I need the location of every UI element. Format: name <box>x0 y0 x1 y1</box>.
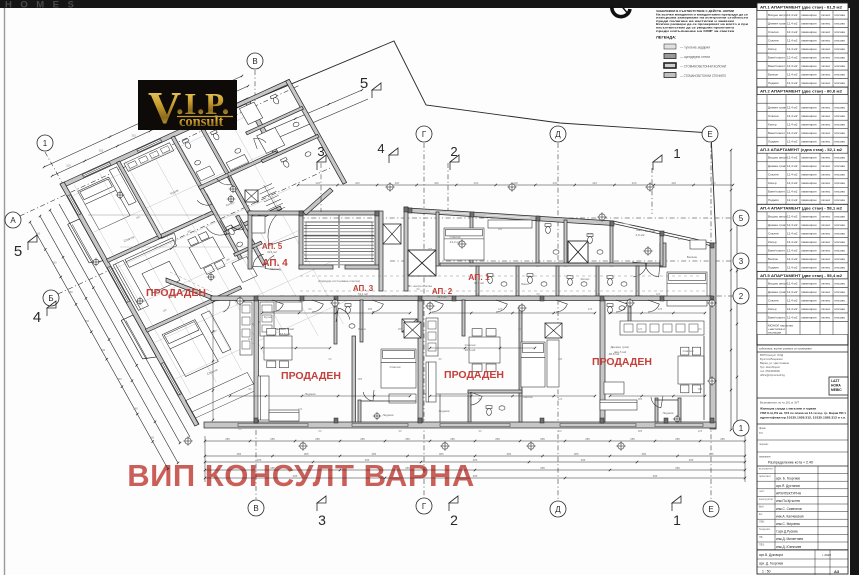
svg-text:АП.3 АПАРТАМЕНТ (една стая) -: АП.3 АПАРТАМЕНТ (една стая) - 52,1 м2 <box>760 148 842 152</box>
svg-text:Варна, ул. Цар Симеон: Варна, ул. Цар Симеон <box>760 361 790 365</box>
svg-text:ПБЗ:: ПБЗ: <box>759 543 765 546</box>
svg-text:120: 120 <box>558 397 563 401</box>
svg-text:385: 385 <box>405 437 410 441</box>
svg-text:ламиниран: ламиниран <box>801 315 817 319</box>
svg-text:20,6 м2: 20,6 м2 <box>465 348 476 352</box>
svg-text:название:: название: <box>759 456 772 459</box>
svg-text:Е: Е <box>707 130 712 139</box>
svg-text:4: 4 <box>33 309 41 326</box>
svg-text:гипсова: гипсова <box>834 131 845 135</box>
svg-text:Спалня: Спалня <box>390 365 401 369</box>
svg-text:260: 260 <box>133 406 138 410</box>
svg-text:латекс: латекс <box>821 47 831 51</box>
svg-text:240: 240 <box>588 232 593 236</box>
svg-text:385: 385 <box>709 452 714 456</box>
svg-text:ламиниран: ламиниран <box>801 106 817 110</box>
svg-text:инж.С. Симеонов: инж.С. Симеонов <box>776 507 802 511</box>
svg-text:385: 385 <box>638 429 643 433</box>
svg-text:385: 385 <box>506 452 511 456</box>
svg-text:Баня/тоалет: Баня/тоалет <box>768 56 786 60</box>
svg-text:(Коридор отстъпване клетка): (Коридор отстъпване клетка) <box>318 279 360 283</box>
svg-text:гипсова: гипсова <box>834 173 845 177</box>
svg-text:Балкон: Балкон <box>768 257 778 261</box>
svg-text:арх.В. Дуковора: арх.В. Дуковора <box>759 553 783 557</box>
svg-text:Килер: Килер <box>768 181 777 185</box>
svg-text:385: 385 <box>368 307 373 311</box>
svg-text:инж.С. Мирчева: инж.С. Мирчева <box>776 522 800 526</box>
svg-text:425: 425 <box>698 429 703 433</box>
svg-text:Дневен тракт: Дневен тракт <box>768 106 787 110</box>
svg-text:гипсова: гипсова <box>834 223 845 227</box>
svg-text:ламиниран: ламиниран <box>801 240 817 244</box>
svg-text:инж.Д. Юзекчиев: инж.Д. Юзекчиев <box>776 545 802 549</box>
svg-text:33,6 м2: 33,6 м2 <box>280 332 291 336</box>
svg-text:ламиниран: ламиниран <box>801 290 817 294</box>
svg-text:латекс: латекс <box>821 223 831 227</box>
svg-text:MEBIC: MEBIC <box>831 388 842 392</box>
svg-text:Лоджия: Лоджия <box>768 140 779 144</box>
svg-text:Спалня: Спалня <box>522 395 533 399</box>
svg-text:ламиниран: ламиниран <box>801 114 817 118</box>
svg-text:385: 385 <box>315 437 320 441</box>
svg-text:420: 420 <box>671 181 676 185</box>
svg-text:3: 3 <box>739 257 744 266</box>
svg-text:Вх. антре клетка: Вх. антре клетка <box>408 284 432 288</box>
svg-text:латекс: латекс <box>821 22 831 26</box>
svg-text:гипсова: гипсова <box>834 257 845 261</box>
svg-text:гипсова: гипсова <box>834 198 845 202</box>
svg-text:гипсова: гипсова <box>834 190 845 194</box>
svg-text:АП.1 АПАРТАМЕНТ (две стаи) -: АП.1 АПАРТАМЕНТ (две стаи) - 61,5 м2 <box>760 5 842 9</box>
svg-text:385: 385 <box>689 458 694 462</box>
svg-text:гипсова: гипсова <box>834 123 845 127</box>
svg-text:LAZT: LAZT <box>831 379 839 383</box>
svg-text:32,1 м2: 32,1 м2 <box>267 250 277 254</box>
svg-text:— СТОМАНОБЕТОННИ СТЕНИ/ПЛ: — СТОМАНОБЕТОННИ СТЕНИ/ПЛ <box>680 74 726 78</box>
svg-text:260: 260 <box>85 319 90 323</box>
svg-text:Спалня: Спалня <box>450 235 461 239</box>
svg-text:Спалня: Спалня <box>768 39 779 43</box>
svg-text:Спалня: Спалня <box>768 298 779 302</box>
svg-text:гипсова: гипсова <box>834 64 845 68</box>
svg-text:ламиниран: ламиниран <box>801 231 817 235</box>
svg-text:арх. Д. Георгиев: арх. Д. Георгиев <box>759 562 783 566</box>
svg-text:арх.Я. Духтанов: арх.Я. Духтанов <box>776 484 800 488</box>
svg-text:HOMES: HOMES <box>5 0 82 11</box>
svg-text:ламиниран: ламиниран <box>801 265 817 269</box>
svg-text:385: 385 <box>653 474 658 478</box>
svg-text:260: 260 <box>52 261 57 265</box>
svg-text:12,4 м2: 12,4 м2 <box>787 281 798 285</box>
svg-text:латекс: латекс <box>821 39 831 43</box>
svg-text:420: 420 <box>315 181 320 185</box>
svg-text:гипсова: гипсова <box>834 47 845 51</box>
svg-text:ламиниран: ламиниран <box>801 214 817 218</box>
svg-text:12,4 м2: 12,4 м2 <box>787 30 798 34</box>
svg-text:385: 385 <box>675 466 680 470</box>
svg-text:Спалня: Спалня <box>768 231 779 235</box>
svg-text:12,4 м2: 12,4 м2 <box>787 214 798 218</box>
svg-text:385: 385 <box>473 458 478 462</box>
svg-text:латекс: латекс <box>821 190 831 194</box>
svg-text:385: 385 <box>473 474 478 478</box>
svg-text:420: 420 <box>434 181 439 185</box>
svg-text:385: 385 <box>638 397 643 401</box>
svg-text:Входно антре: Входно антре <box>768 13 787 17</box>
svg-text:12,4 м2: 12,4 м2 <box>787 13 798 17</box>
svg-text:385: 385 <box>720 437 725 441</box>
svg-text:ламиниран: ламиниран <box>801 307 817 311</box>
svg-text:идентификатор 10135.1026.312,: идентификатор 10135.1026.312, 10135.1026… <box>760 416 846 420</box>
svg-text:А: А <box>10 216 16 225</box>
svg-text:латекс: латекс <box>821 315 831 319</box>
svg-text:АП.2 АПАРТАМЕНТ (две стаи) -: АП.2 АПАРТАМЕНТ (две стаи) - 60,6 м2 <box>760 90 842 94</box>
svg-text:12,4 м2: 12,4 м2 <box>787 114 798 118</box>
svg-text:Дневен тракт: Дневен тракт <box>768 164 787 168</box>
svg-text:гипсова: гипсова <box>834 164 845 168</box>
svg-text:гипсова: гипсова <box>834 73 845 77</box>
svg-text:12,4 м2: 12,4 м2 <box>787 156 798 160</box>
svg-text:1: 1 <box>739 424 744 433</box>
svg-text:латекс: латекс <box>821 257 831 261</box>
svg-text:ламиниран: ламиниран <box>801 298 817 302</box>
svg-text:385: 385 <box>585 437 590 441</box>
svg-text:4,6 м2: 4,6 м2 <box>635 233 644 237</box>
svg-text:Лоджия: Лоджия <box>383 413 394 417</box>
svg-text:13,2 м2: 13,2 м2 <box>450 240 461 244</box>
svg-text:арх. Б. Георгиев: арх. Б. Георгиев <box>776 476 800 480</box>
svg-text:385: 385 <box>581 458 586 462</box>
svg-text:385: 385 <box>360 437 365 441</box>
svg-text:12,4 м2: 12,4 м2 <box>787 131 798 135</box>
svg-text:Геодезия:: Геодезия: <box>759 528 771 531</box>
svg-text:латекс: латекс <box>821 307 831 311</box>
svg-text:120: 120 <box>596 292 601 296</box>
svg-text:ламиниран: ламиниран <box>801 56 817 60</box>
svg-text:латекс: латекс <box>821 156 831 160</box>
svg-text:Д: Д <box>555 505 561 514</box>
svg-text:12,4 м2: 12,4 м2 <box>787 240 798 244</box>
svg-text:310: 310 <box>66 164 71 168</box>
svg-text:проектант:: проектант: <box>759 475 772 478</box>
svg-text:ПРОДАДЕН: ПРОДАДЕН <box>146 287 206 299</box>
svg-text:12,4 м2: 12,4 м2 <box>787 140 798 144</box>
svg-text:латекс: латекс <box>821 164 831 168</box>
svg-text:латекс: латекс <box>821 123 831 127</box>
svg-text:385: 385 <box>270 437 275 441</box>
svg-text:12,4 м2: 12,4 м2 <box>787 56 798 60</box>
svg-text:12,4 м2: 12,4 м2 <box>787 64 798 68</box>
svg-text:420: 420 <box>553 181 558 185</box>
svg-text:Баня/тоалет: Баня/тоалет <box>768 131 786 135</box>
svg-text:Балкон: Балкон <box>645 229 656 233</box>
svg-text:ТИ: ТИ <box>759 431 763 435</box>
svg-text:— щендерни стени: — щендерни стени <box>680 55 710 59</box>
svg-text:Баня: Баня <box>521 282 528 286</box>
svg-text:Д: Д <box>555 130 561 139</box>
svg-text:Дневен тракт: Дневен тракт <box>610 345 630 349</box>
svg-text:Баня: Баня <box>358 327 365 331</box>
svg-text:5: 5 <box>739 214 744 223</box>
svg-text:ВИП Консулт ООД: ВИП Консулт ООД <box>760 353 783 357</box>
svg-text:2: 2 <box>450 512 458 528</box>
svg-text:425: 425 <box>658 307 663 311</box>
svg-text:385: 385 <box>675 437 680 441</box>
svg-text:латекс: латекс <box>821 73 831 77</box>
svg-text:12,4 м2: 12,4 м2 <box>787 123 798 127</box>
svg-text:Баня/тоалет: Баня/тоалет <box>768 190 786 194</box>
svg-text:Килер: Килер <box>768 307 777 311</box>
svg-text:гипсова: гипсова <box>834 248 845 252</box>
svg-text:ПРОДАДЕН: ПРОДАДЕН <box>281 370 341 382</box>
svg-text:385: 385 <box>225 437 230 441</box>
svg-text:част:: част: <box>759 490 765 493</box>
svg-text:420: 420 <box>395 181 400 185</box>
svg-text:ВиК:: ВиК: <box>759 505 765 508</box>
svg-text:385: 385 <box>498 227 503 231</box>
svg-text:гипсова: гипсова <box>834 240 845 244</box>
svg-text:гипсова: гипсова <box>834 140 845 144</box>
svg-text:възложител:: възложител: <box>759 467 774 470</box>
svg-text:Лоджия: Лоджия <box>768 81 779 85</box>
svg-text:425: 425 <box>678 237 683 241</box>
svg-text:ЛЕГЕНДА:: ЛЕГЕНДА: <box>656 35 676 40</box>
svg-text:ламиниран: ламиниран <box>801 81 817 85</box>
svg-text:420: 420 <box>711 181 716 185</box>
svg-text:ламиниран: ламиниран <box>801 164 817 168</box>
svg-text:385: 385 <box>365 458 370 462</box>
svg-text:385: 385 <box>630 437 635 441</box>
svg-text:1: 1 <box>673 146 680 161</box>
svg-text:420: 420 <box>355 181 360 185</box>
svg-text:12,4 м2: 12,4 м2 <box>787 290 798 294</box>
svg-text:гипсова: гипсова <box>834 30 845 34</box>
svg-text:120: 120 <box>298 407 303 411</box>
svg-text:В: В <box>252 57 257 66</box>
svg-text:12,4 м2: 12,4 м2 <box>787 47 798 51</box>
svg-text:Възложители: по чл.161 от ЗУТ: Възложители: по чл.161 от ЗУТ <box>760 401 800 405</box>
svg-text:Спалня: Спалня <box>768 30 779 34</box>
svg-text:гипсова: гипсова <box>834 298 845 302</box>
svg-text:латекс: латекс <box>821 140 831 144</box>
svg-text:12,4 м2: 12,4 м2 <box>787 164 798 168</box>
svg-text:12,4 м2: 12,4 м2 <box>787 265 798 269</box>
svg-text:латекс: латекс <box>821 198 831 202</box>
svg-text:гипсова: гипсова <box>834 290 845 294</box>
svg-text:office@vipconsult.bg: office@vipconsult.bg <box>760 373 785 377</box>
svg-text:УПИ II-4,I,ПЗ кв. 573 по плана: УПИ II-4,I,ПЗ кв. 573 по плана на 14-ти … <box>760 411 846 415</box>
svg-text:120: 120 <box>638 327 643 331</box>
svg-text:Спалня: Спалня <box>768 173 779 177</box>
svg-text:385: 385 <box>270 466 275 470</box>
svg-text:латекс: латекс <box>821 56 831 60</box>
svg-text:Балкон: Балкон <box>687 255 698 259</box>
svg-text:Баня/тоалет: Баня/тоалет <box>768 248 786 252</box>
svg-text:гипсова: гипсова <box>834 13 845 17</box>
svg-text:12,4 м2: 12,4 м2 <box>787 307 798 311</box>
svg-text:латекс: латекс <box>821 173 831 177</box>
svg-text:Дневен тракт: Дневен тракт <box>275 327 295 331</box>
svg-text:44,6 м2: 44,6 м2 <box>437 295 447 299</box>
svg-text:гипсова: гипсова <box>834 315 845 319</box>
svg-text:Лоджия: Лоджия <box>663 411 674 415</box>
svg-text:385: 385 <box>405 466 410 470</box>
svg-text:Жилищна сграда с магазини и га: Жилищна сграда с магазини и гаражи <box>759 407 816 411</box>
svg-text:гипсова: гипсова <box>834 181 845 185</box>
svg-text:бул. Княз Борис: бул. Княз Борис <box>760 365 781 369</box>
svg-text:120: 120 <box>248 337 253 341</box>
svg-text:385: 385 <box>257 458 262 462</box>
svg-text:12,4 м2: 12,4 м2 <box>787 257 798 261</box>
svg-text:5: 5 <box>360 75 368 92</box>
svg-text:ПРОДАДЕН: ПРОДАДЕН <box>444 369 504 381</box>
svg-text:ламиниран: ламиниран <box>801 64 817 68</box>
svg-text:Лоджия: Лоджия <box>768 198 779 202</box>
svg-text:латекс: латекс <box>821 106 831 110</box>
svg-text:Спалня: Спалня <box>683 349 694 353</box>
svg-text:12,4 м2: 12,4 м2 <box>787 248 798 252</box>
svg-text:240: 240 <box>518 327 523 331</box>
svg-text:гипсова: гипсова <box>834 214 845 218</box>
svg-text:Балкон: Балкон <box>768 73 778 77</box>
svg-text:гипсова: гипсова <box>834 81 845 85</box>
svg-text:ламиниран: ламиниран <box>801 73 817 77</box>
svg-text:385: 385 <box>450 437 455 441</box>
svg-text:Баня/тоалет: Баня/тоалет <box>768 315 786 319</box>
svg-text:12,4 м2: 12,4 м2 <box>787 106 798 110</box>
svg-text:ламиниран: ламиниран <box>801 39 817 43</box>
svg-text:385: 385 <box>236 452 241 456</box>
svg-text:латекс: латекс <box>821 298 831 302</box>
svg-text:385: 385 <box>439 452 444 456</box>
svg-text:Килер: Килер <box>581 277 590 281</box>
svg-text:Г: Г <box>422 502 427 511</box>
svg-text:12,4 м2: 12,4 м2 <box>787 173 798 177</box>
svg-text:260: 260 <box>150 435 155 439</box>
svg-text:420: 420 <box>632 181 637 185</box>
svg-text:12,4 м2: 12,4 м2 <box>787 231 798 235</box>
svg-text:ламиниран: ламиниран <box>801 173 817 177</box>
svg-text:Лоджия: Лоджия <box>768 265 779 269</box>
svg-text:чертеж:: чертеж: <box>759 443 769 446</box>
svg-text:Спалня: Спалня <box>465 343 476 347</box>
svg-text:385: 385 <box>304 452 309 456</box>
svg-text:Разпределение кота + 2.40: Разпределение кота + 2.40 <box>768 461 813 465</box>
svg-text:Баня: Баня <box>636 228 643 232</box>
svg-text:385: 385 <box>398 327 403 331</box>
svg-text:ламиниран: ламиниран <box>801 140 817 144</box>
svg-text:260: 260 <box>117 377 122 381</box>
svg-text:латекс: латекс <box>821 231 831 235</box>
svg-text:Г: Г <box>422 130 427 139</box>
svg-text:52,1 м2: 52,1 м2 <box>358 292 368 296</box>
svg-text:изолация: изолация <box>768 331 781 335</box>
svg-text:ламиниран: ламиниран <box>801 156 817 160</box>
svg-text:гипсова: гипсова <box>834 114 845 118</box>
svg-text:гипсова: гипсова <box>834 307 845 311</box>
svg-text:Лоджия: Лоджия <box>439 409 450 413</box>
svg-text:латекс: латекс <box>821 181 831 185</box>
svg-text:латекс: латекс <box>821 81 831 85</box>
svg-text:385: 385 <box>698 387 703 391</box>
svg-text:гипсова: гипсова <box>834 106 845 110</box>
svg-text:385: 385 <box>641 452 646 456</box>
svg-text:385: 385 <box>495 437 500 441</box>
svg-text:Ел:: Ел: <box>759 513 763 516</box>
svg-text:12,4 м2: 12,4 м2 <box>787 298 798 302</box>
svg-text:Входно антре: Входно антре <box>768 156 787 160</box>
svg-text:тел. 052/000000: тел. 052/000000 <box>760 369 780 373</box>
svg-text:латекс: латекс <box>821 290 831 294</box>
svg-text:385: 385 <box>358 377 363 381</box>
svg-text:ламиниран: ламиниран <box>801 30 817 34</box>
svg-text:420: 420 <box>474 181 479 185</box>
svg-text:В: В <box>253 504 258 513</box>
svg-text:ПБ:: ПБ: <box>759 536 763 539</box>
svg-text:310: 310 <box>99 149 104 153</box>
svg-text:310: 310 <box>132 134 137 138</box>
svg-text:латекс: латекс <box>821 214 831 218</box>
svg-text:латекс: латекс <box>821 30 831 34</box>
svg-text:ламиниран: ламиниран <box>801 131 817 135</box>
svg-text:Входно антре: Входно антре <box>768 214 787 218</box>
svg-text:Килер: Килер <box>768 123 777 127</box>
svg-text:12,4 м2: 12,4 м2 <box>787 223 798 227</box>
svg-text:— СТОМАНОБЕТОННИ КОЛОНИ: — СТОМАНОБЕТОННИ КОЛОНИ <box>680 64 726 68</box>
svg-text:420: 420 <box>592 181 597 185</box>
svg-text:ламиниран: ламиниран <box>801 22 817 26</box>
svg-text:425: 425 <box>588 307 593 311</box>
svg-text:ПРОДАДЕН: ПРОДАДЕН <box>592 356 652 368</box>
svg-text:гипсова: гипсова <box>834 265 845 269</box>
svg-text:3: 3 <box>318 512 326 528</box>
svg-text:1 : 50: 1 : 50 <box>762 570 771 574</box>
svg-text:61,5 м2: 61,5 м2 <box>474 281 484 285</box>
svg-text:385: 385 <box>574 452 579 456</box>
svg-text:Спалня: Спалня <box>768 114 779 118</box>
svg-text:ОВК:: ОВК: <box>759 521 765 524</box>
svg-text:ламиниран: ламиниран <box>801 223 817 227</box>
svg-text:Лоджия: Лоджия <box>305 392 316 396</box>
svg-text:латекс: латекс <box>821 64 831 68</box>
svg-text:Б: Б <box>48 294 53 303</box>
svg-text:385: 385 <box>540 437 545 441</box>
svg-text:260: 260 <box>101 348 106 352</box>
svg-text:латекс: латекс <box>821 265 831 269</box>
svg-text:ламиниран: ламиниран <box>801 190 817 194</box>
svg-text:ВИП КОНСУЛТ ВАРНА: ВИП КОНСУЛТ ВАРНА <box>127 458 475 493</box>
svg-text:1: 1 <box>43 139 48 148</box>
svg-text:ламиниран: ламиниран <box>801 123 817 127</box>
svg-text:12,4 м2: 12,4 м2 <box>787 315 798 319</box>
svg-text:— тухлена зидария: — тухлена зидария <box>680 45 710 49</box>
svg-text:преди изпълнение на СМР за сме: преди изпълнение на СМР за сметка <box>656 29 734 33</box>
svg-text:12,4 м2: 12,4 м2 <box>787 39 798 43</box>
svg-text:гипсова: гипсова <box>834 39 845 43</box>
svg-text:латекс: латекс <box>821 114 831 118</box>
svg-text:385: 385 <box>540 466 545 470</box>
svg-text:ламиниран: ламиниран <box>801 181 817 185</box>
svg-text:12,4 м2: 12,4 м2 <box>787 190 798 194</box>
svg-text:33,7 м2: 33,7 м2 <box>270 267 280 271</box>
svg-text:ламиниран: ламиниран <box>801 248 817 252</box>
svg-text:инж.А. Калчевская: инж.А. Калчевская <box>776 514 804 518</box>
svg-text:ламиниран: ламиниран <box>801 281 817 285</box>
svg-text:ламиниран: ламиниран <box>801 257 817 261</box>
svg-text:Кухня: Кухня <box>264 315 273 319</box>
svg-text:Входно антре: Входно антре <box>768 281 787 285</box>
svg-text:гипсова: гипсова <box>834 231 845 235</box>
